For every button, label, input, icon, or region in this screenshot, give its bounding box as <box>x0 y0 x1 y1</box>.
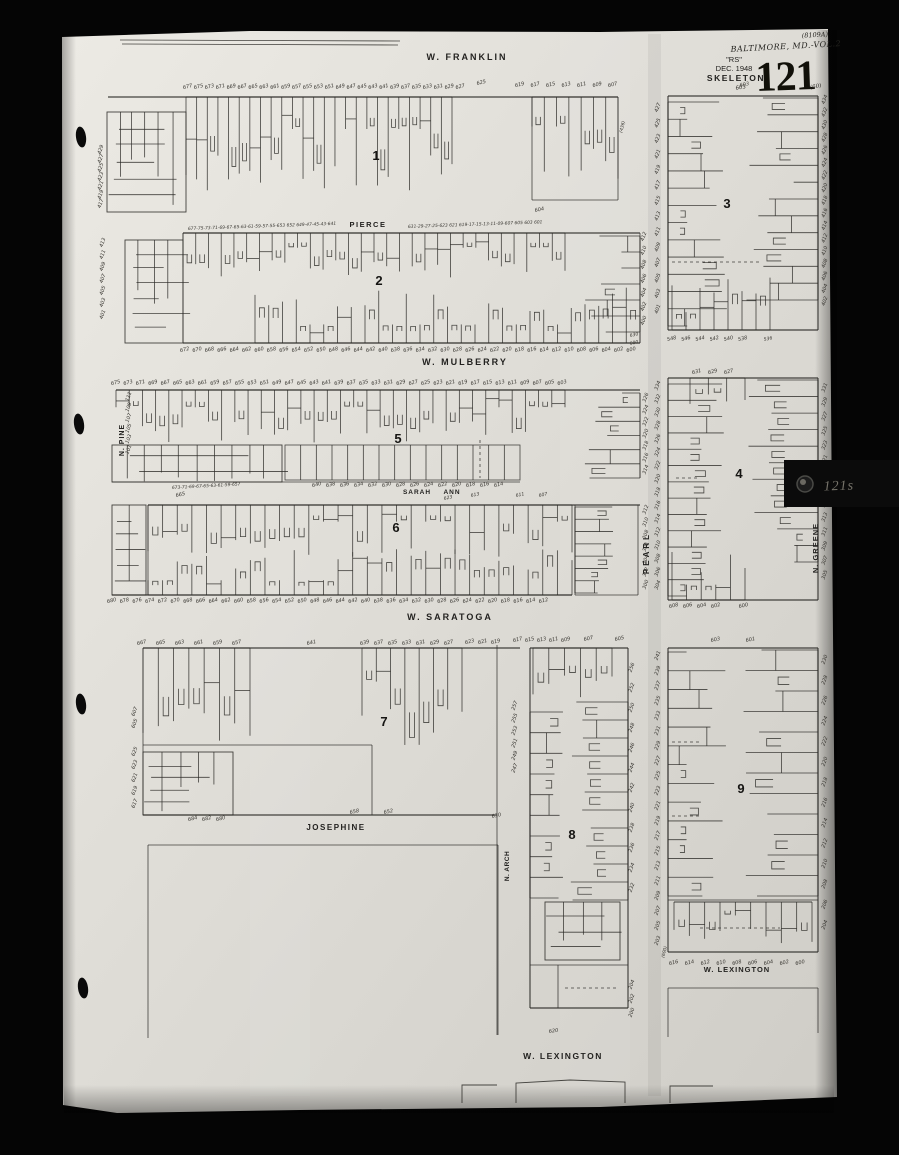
tab-rivet-glint <box>800 479 806 485</box>
street-label-n-pine: N. PINE <box>119 424 126 456</box>
street-label-n-greene: N. GREENE <box>811 523 820 573</box>
series-label: "RS" <box>726 55 742 64</box>
map-scan-svg: 6776756736716696676656636616596576556536… <box>0 0 899 1155</box>
street-label-josephine: JOSEPHINE <box>306 823 365 832</box>
block-number-3: 3 <box>723 196 730 211</box>
paper-sheet <box>62 29 837 1113</box>
plate-note: (8109A) <box>802 30 829 39</box>
scanned-map-page: BALTIMORE, MD.-VOL.2 6776756736716696676… <box>0 0 899 1155</box>
scan-streak <box>560 34 630 1096</box>
street-label-ann: ANN <box>443 489 460 496</box>
tab-sheet-number: 121s <box>823 478 854 494</box>
date-label: DEC. 1948 <box>716 64 753 73</box>
street-label-w-saratoga: W. SARATOGA <box>407 612 493 622</box>
block-number-4: 4 <box>735 466 743 481</box>
block-number-9: 9 <box>737 781 744 796</box>
street-label-n-arch: N. ARCH <box>504 851 511 881</box>
street-label-sarah: SARAH <box>403 489 431 496</box>
bottom-edge-shadow <box>64 1085 834 1113</box>
index-tab: 121s <box>784 460 899 507</box>
street-label-w-franklin: W. FRANKLIN <box>427 52 508 62</box>
block-number-5: 5 <box>394 431 401 446</box>
sheet-number: 121 <box>755 53 817 101</box>
street-label-w-lexington-e: W. LEXINGTON <box>704 965 770 974</box>
block-number-2: 2 <box>375 273 382 288</box>
street-label-pearl: PEARL <box>642 532 651 574</box>
street-label-w-mulberry: W. MULBERRY <box>422 357 508 367</box>
street-label-w-lexington-s: W. LEXINGTON <box>523 1051 603 1061</box>
scan-streak <box>250 34 310 1096</box>
block-number-6: 6 <box>392 520 399 535</box>
block-number-1: 1 <box>372 148 379 163</box>
left-edge-shadow <box>62 34 76 1109</box>
street-label-pierce: PIERCE <box>350 220 387 229</box>
block-number-7: 7 <box>380 714 387 729</box>
block-number-8: 8 <box>568 827 575 842</box>
